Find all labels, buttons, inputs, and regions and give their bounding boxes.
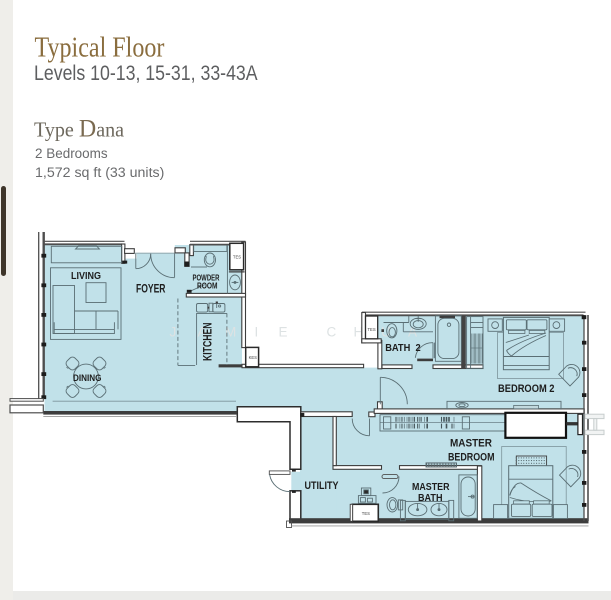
svg-text:BEDROOM 2: BEDROOM 2 bbox=[498, 383, 555, 395]
svg-text:2 Bedrooms: 2 Bedrooms bbox=[35, 145, 108, 161]
svg-text:BATH: BATH bbox=[418, 493, 443, 504]
svg-text:MASTER: MASTER bbox=[450, 437, 492, 449]
svg-text:KITCHEN: KITCHEN bbox=[201, 323, 215, 362]
svg-text:FOYER: FOYER bbox=[136, 284, 166, 296]
svg-text:Typical Floor: Typical Floor bbox=[35, 30, 165, 63]
svg-text:Levels 10-13, 15-31, 33-43A: Levels 10-13, 15-31, 33-43A bbox=[34, 62, 258, 86]
svg-text:UTILITY: UTILITY bbox=[305, 480, 339, 492]
svg-text:TES: TES bbox=[233, 254, 241, 259]
svg-text:I: I bbox=[255, 325, 259, 340]
svg-text:TES: TES bbox=[368, 327, 376, 332]
svg-text:DINING: DINING bbox=[73, 373, 102, 384]
svg-text:J: J bbox=[170, 325, 177, 340]
svg-text:KES: KES bbox=[249, 355, 258, 360]
svg-text:BEDROOM: BEDROOM bbox=[448, 452, 495, 464]
svg-text:E: E bbox=[279, 325, 288, 340]
svg-text:MASTER: MASTER bbox=[412, 482, 450, 493]
svg-text:1,572 sq ft (33 units): 1,572 sq ft (33 units) bbox=[35, 165, 164, 181]
svg-text:ROOM: ROOM bbox=[197, 280, 218, 290]
svg-text:BATH 2: BATH 2 bbox=[385, 343, 421, 354]
svg-text:LIVING: LIVING bbox=[71, 271, 101, 282]
svg-text:C: C bbox=[327, 325, 337, 340]
svg-text:TES: TES bbox=[362, 511, 370, 516]
svg-text:Type Dana: Type Dana bbox=[34, 115, 124, 143]
